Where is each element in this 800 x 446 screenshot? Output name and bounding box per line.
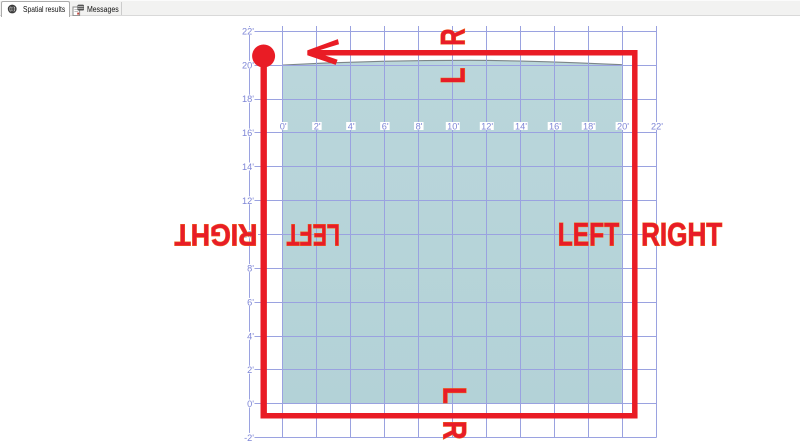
svg-text:R: R [437,421,473,440]
svg-text:RIGHT: RIGHT [174,218,257,253]
svg-text:16': 16' [549,121,561,131]
svg-text:8': 8' [247,264,254,274]
svg-text:18': 18' [583,121,595,131]
svg-text:0': 0' [247,399,254,409]
svg-text:22': 22' [651,121,663,131]
svg-text:14': 14' [242,162,254,172]
svg-text:20': 20' [242,60,254,70]
svg-text:4': 4' [348,121,355,131]
svg-text:-2': -2' [244,433,254,443]
svg-text:0': 0' [280,121,287,131]
svg-text:12': 12' [242,196,254,206]
svg-text:R: R [435,28,473,45]
svg-text:22': 22' [242,27,254,37]
svg-text:L: L [437,387,473,404]
svg-text:20': 20' [617,121,629,131]
svg-text:L: L [435,68,473,84]
svg-text:6': 6' [382,121,389,131]
svg-text:2': 2' [247,365,254,375]
svg-text:4': 4' [247,331,254,341]
svg-text:12': 12' [481,121,493,131]
svg-text:LEFT: LEFT [287,218,340,253]
svg-text:10': 10' [447,121,459,131]
svg-text:6': 6' [247,297,254,307]
svg-text:18': 18' [242,94,254,104]
svg-text:14': 14' [515,121,527,131]
svg-text:LEFT: LEFT [558,217,620,253]
svg-text:2': 2' [314,121,321,131]
svg-text:8': 8' [416,121,423,131]
svg-text:RIGHT: RIGHT [641,217,722,253]
svg-text:16': 16' [242,128,254,138]
